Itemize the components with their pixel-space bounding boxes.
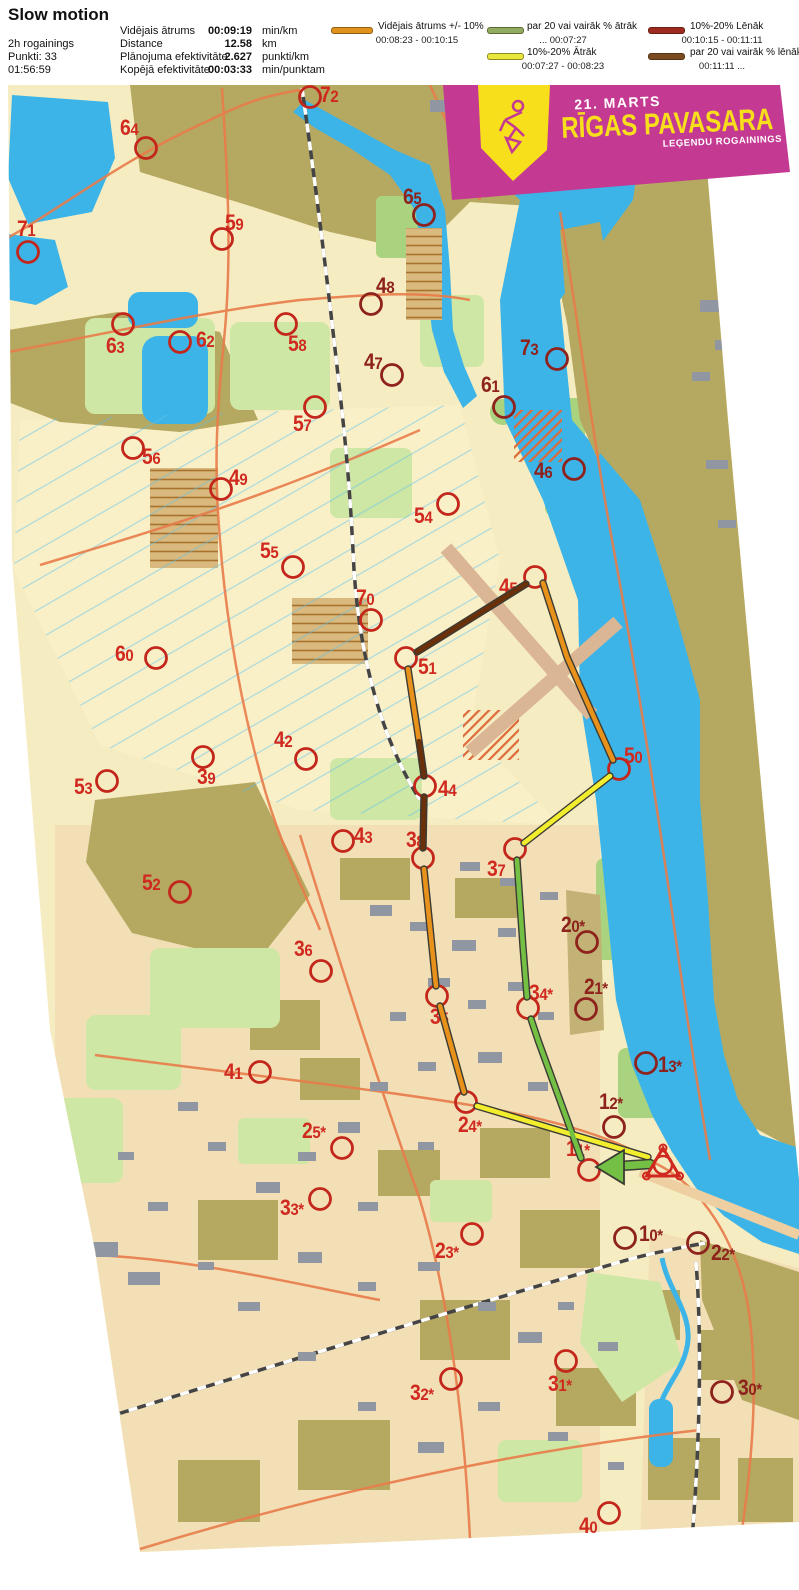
- stat-value: 2.627: [200, 51, 252, 63]
- legend-range: 00:08:23 - 00:10:15: [352, 35, 482, 46]
- legend-range: ... 00:07:27: [508, 35, 618, 46]
- stat-value: 00:09:19: [200, 25, 252, 37]
- stat-value: 00:03:33: [200, 64, 252, 76]
- legend-label: 10%-20% Lēnāk: [690, 21, 763, 32]
- runner-name: Slow motion: [8, 5, 109, 25]
- report-page: 7264657159486362584757736156494654557045…: [0, 0, 799, 1590]
- stat-unit: min/km: [262, 25, 297, 37]
- legend-swatch-faster20: [487, 27, 524, 34]
- legend-swatch-average: [331, 27, 373, 34]
- legend-label: par 20 vai vairāk % ātrāk: [527, 21, 637, 32]
- legend-range: 00:10:15 - 00:11:11: [662, 35, 782, 46]
- legend-swatch-slower20: [648, 53, 685, 60]
- total-time: 01:56:59: [8, 64, 51, 76]
- points-total: Punkti: 33: [8, 51, 57, 63]
- legend-range: 00:07:27 - 00:08:23: [508, 61, 618, 72]
- legend-label: par 20 vai vairāk % lēnāk: [690, 47, 799, 58]
- legend-label: Vidējais ātrums +/- 10%: [378, 21, 484, 32]
- stat-unit: punkti/km: [262, 51, 309, 63]
- report-header: Slow motion 2h rogainings Punkti: 33 01:…: [0, 0, 799, 85]
- legend-range: 00:11:11 ...: [662, 61, 782, 72]
- event-name: 2h rogainings: [8, 38, 74, 50]
- stat-unit: km: [262, 38, 277, 50]
- legend-label: 10%-20% Ātrāk: [527, 47, 596, 58]
- legend-swatch-slower10: [648, 27, 685, 34]
- stat-unit: min/punktam: [262, 64, 325, 76]
- legend-swatch-faster10: [487, 53, 524, 60]
- stat-value: 12.58: [200, 38, 252, 50]
- event-banner: 21. MARTS RĪGAS PAVASARA LEĢENDU ROGAINI…: [0, 0, 799, 1590]
